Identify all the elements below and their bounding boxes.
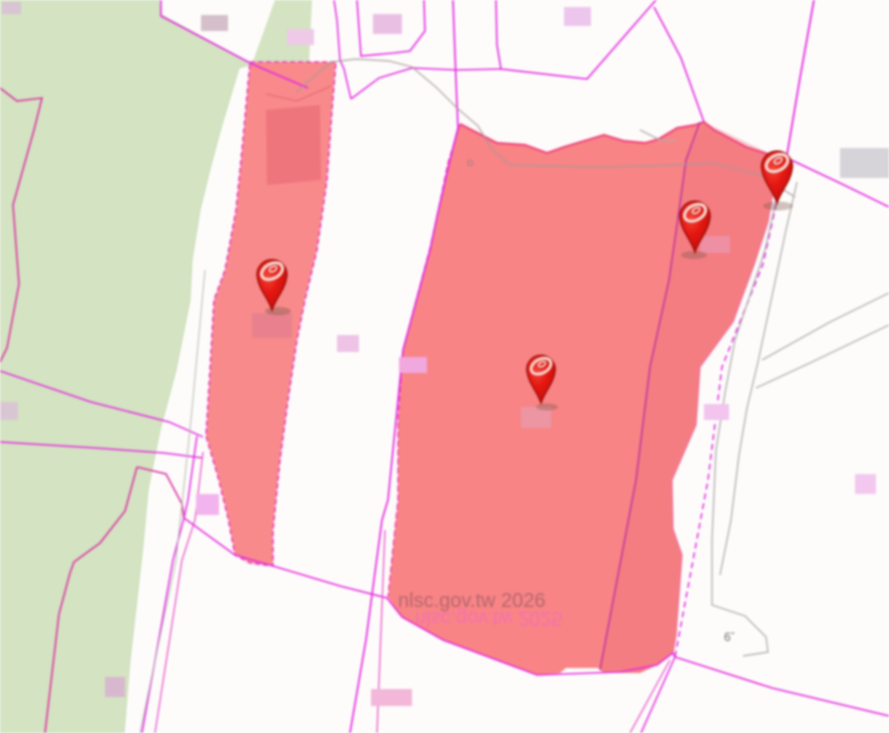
svg-text:nlsc.gov.tw 2026: nlsc.gov.tw 2026: [398, 590, 546, 612]
svg-text:D·: D·: [467, 158, 476, 168]
svg-text:6ˇ: 6ˇ: [724, 630, 735, 644]
